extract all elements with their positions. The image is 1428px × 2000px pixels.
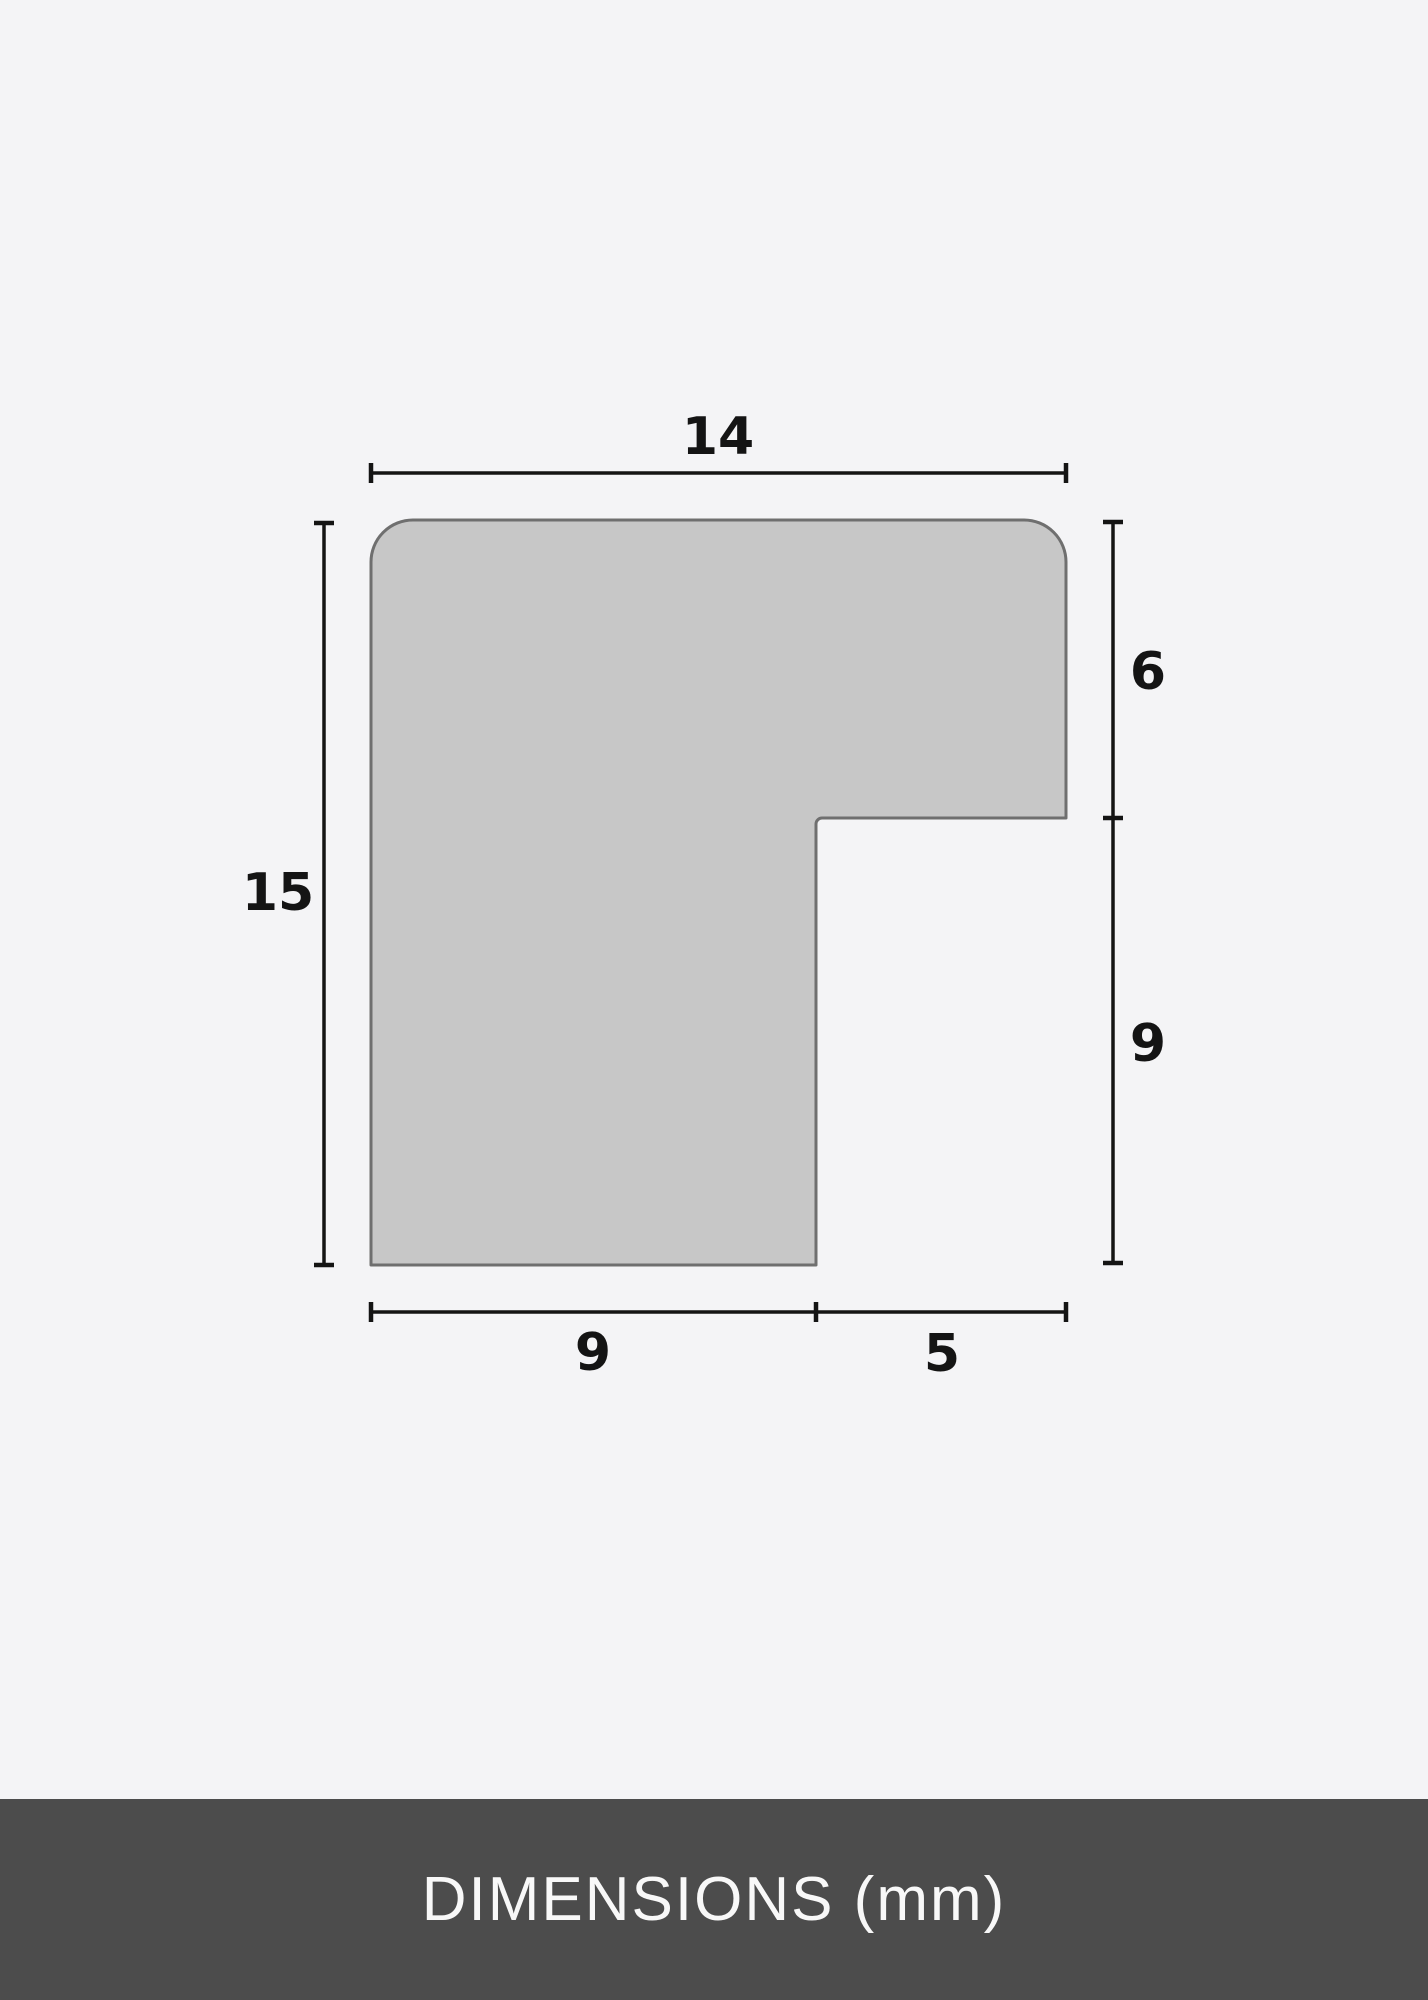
- dimension-top-width: 14: [371, 407, 1066, 483]
- dimension-label-right-upper: 6: [1130, 642, 1166, 702]
- dimension-diagram-page: 14 15 6 9 9 5 DIMENSIONS (: [0, 0, 1428, 2000]
- dimension-label-top-width: 14: [682, 407, 754, 467]
- footer-title: DIMENSIONS (mm): [422, 1864, 1007, 1935]
- dimension-bottom-widths: 9 5: [371, 1302, 1066, 1384]
- profile-dimension-diagram: 14 15 6 9 9 5: [0, 0, 1428, 1799]
- dimension-right-heights: 6 9: [1103, 522, 1166, 1263]
- dimension-left-height: 15: [242, 523, 334, 1265]
- frame-profile-shape: [371, 520, 1066, 1265]
- dimension-label-bottom-left: 9: [575, 1323, 611, 1383]
- footer-banner: DIMENSIONS (mm): [0, 1799, 1428, 2000]
- dimension-label-bottom-right: 5: [924, 1324, 960, 1384]
- dimension-label-right-lower: 9: [1130, 1014, 1166, 1074]
- dimension-label-left-height: 15: [242, 863, 314, 923]
